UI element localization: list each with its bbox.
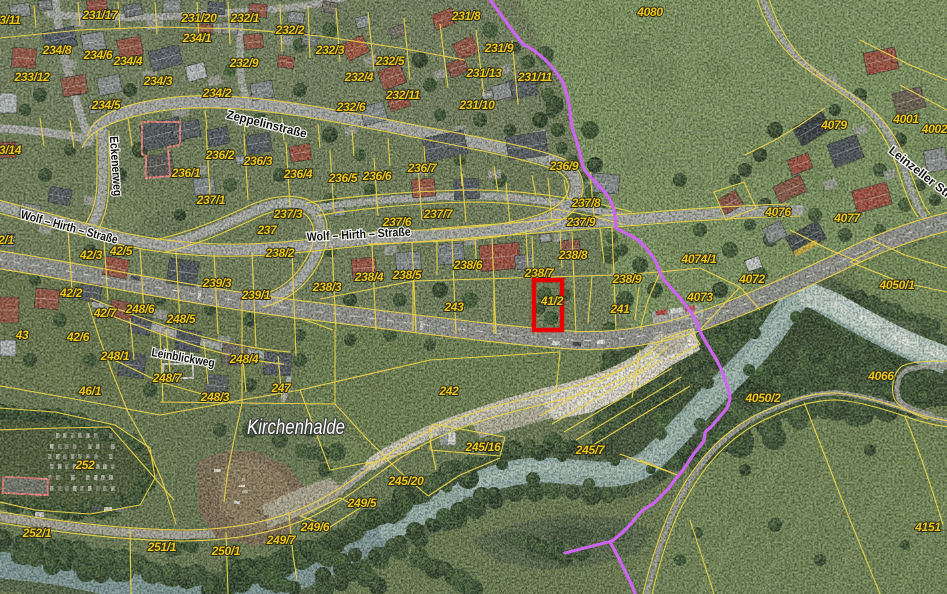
svg-text:236/6: 236/6	[362, 169, 392, 183]
svg-text:250/1: 250/1	[211, 544, 241, 558]
svg-text:248/1: 248/1	[100, 349, 130, 363]
svg-text:4050/1: 4050/1	[879, 278, 916, 292]
svg-text:239/3: 239/3	[202, 276, 232, 290]
svg-text:42/6: 42/6	[66, 330, 90, 344]
svg-text:231/13: 231/13	[466, 66, 503, 80]
svg-text:231/9: 231/9	[484, 41, 514, 55]
svg-text:234/2: 234/2	[202, 86, 232, 100]
svg-text:237/9: 237/9	[566, 215, 596, 229]
svg-text:248/6: 248/6	[125, 302, 155, 316]
svg-text:46/1: 46/1	[78, 384, 102, 398]
svg-text:231/17: 231/17	[82, 8, 120, 22]
svg-text:41/2: 41/2	[540, 294, 564, 308]
svg-text:252: 252	[74, 458, 95, 472]
svg-text:249/5: 249/5	[347, 496, 377, 510]
svg-text:4066: 4066	[867, 369, 894, 383]
svg-text:236/2: 236/2	[205, 148, 235, 162]
svg-text:251/1: 251/1	[147, 540, 177, 554]
svg-text:4080: 4080	[636, 5, 663, 19]
svg-text:236/9: 236/9	[549, 159, 579, 173]
svg-text:237/8: 237/8	[571, 196, 601, 210]
svg-text:42/3: 42/3	[79, 248, 103, 262]
svg-text:231/10: 231/10	[459, 98, 496, 112]
svg-text:249/7: 249/7	[266, 533, 297, 547]
svg-text:238/4: 238/4	[354, 270, 384, 284]
svg-text:245/16: 245/16	[465, 440, 502, 454]
svg-text:234/6: 234/6	[83, 48, 113, 62]
svg-text:42/5: 42/5	[109, 244, 133, 258]
svg-text:236/4: 236/4	[283, 167, 313, 181]
svg-text:3/11: 3/11	[0, 13, 21, 27]
svg-text:248/3: 248/3	[200, 390, 230, 404]
svg-text:238/2: 238/2	[265, 246, 295, 260]
svg-text:42/2: 42/2	[59, 286, 83, 300]
svg-text:4076: 4076	[764, 205, 791, 219]
svg-text:3/14: 3/14	[0, 143, 22, 157]
svg-text:232/6: 232/6	[336, 100, 366, 114]
svg-text:238/9: 238/9	[612, 272, 642, 286]
svg-text:4079: 4079	[820, 118, 847, 132]
svg-text:43: 43	[15, 328, 29, 342]
svg-text:245/7: 245/7	[575, 443, 606, 457]
svg-text:42/7: 42/7	[93, 306, 118, 320]
svg-text:243: 243	[443, 300, 464, 314]
svg-text:239/1: 239/1	[241, 288, 271, 302]
svg-text:237/1: 237/1	[196, 193, 226, 207]
svg-text:4074/1: 4074/1	[681, 252, 718, 266]
svg-text:4050/2: 4050/2	[745, 391, 782, 405]
svg-text:4073: 4073	[686, 290, 713, 304]
svg-text:233/12: 233/12	[14, 70, 51, 84]
svg-text:238/7: 238/7	[524, 266, 555, 280]
svg-text:4077: 4077	[833, 211, 861, 225]
svg-text:4151: 4151	[914, 520, 941, 534]
svg-text:238/6: 238/6	[453, 258, 483, 272]
svg-text:232/5: 232/5	[375, 54, 405, 68]
svg-text:232/2: 232/2	[275, 23, 305, 37]
svg-text:231/8: 231/8	[451, 9, 481, 23]
svg-text:232/9: 232/9	[229, 56, 259, 70]
svg-text:237/7: 237/7	[423, 207, 454, 221]
svg-text:231/20: 231/20	[181, 11, 218, 25]
svg-text:232/11: 232/11	[385, 88, 421, 102]
svg-text:232/1: 232/1	[230, 11, 260, 25]
svg-text:237/3: 237/3	[273, 207, 303, 221]
svg-text:4001: 4001	[892, 112, 919, 126]
svg-text:249/6: 249/6	[300, 520, 330, 534]
svg-text:248/5: 248/5	[166, 312, 196, 326]
svg-text:232/3: 232/3	[315, 43, 345, 57]
svg-text:252/1: 252/1	[22, 526, 52, 540]
svg-text:236/7: 236/7	[407, 161, 438, 175]
svg-text:236/5: 236/5	[328, 171, 358, 185]
svg-text:245/20: 245/20	[388, 474, 425, 488]
svg-text:238/5: 238/5	[392, 268, 422, 282]
svg-text:248/7: 248/7	[152, 371, 183, 385]
svg-text:232/4: 232/4	[344, 70, 374, 84]
svg-text:248/4: 248/4	[229, 352, 259, 366]
svg-text:Kirchenhalde: Kirchenhalde	[247, 416, 345, 439]
svg-text:4072: 4072	[738, 272, 765, 286]
svg-text:238/3: 238/3	[312, 280, 342, 294]
svg-text:241: 241	[609, 302, 630, 316]
svg-text:238/8: 238/8	[558, 248, 588, 262]
svg-text:234/4: 234/4	[113, 54, 143, 68]
svg-text:236/1: 236/1	[171, 166, 201, 180]
svg-text:247: 247	[270, 381, 292, 395]
svg-text:236/3: 236/3	[243, 154, 273, 168]
svg-text:242: 242	[438, 384, 459, 398]
svg-text:237: 237	[256, 223, 278, 237]
svg-text:2/1: 2/1	[0, 233, 15, 247]
svg-text:234/8: 234/8	[42, 43, 72, 57]
svg-text:231/11: 231/11	[517, 70, 553, 84]
svg-text:234/1: 234/1	[182, 31, 212, 45]
svg-text:234/3: 234/3	[143, 74, 173, 88]
svg-text:4002/: 4002/	[921, 122, 947, 136]
svg-text:234/5: 234/5	[91, 98, 121, 112]
